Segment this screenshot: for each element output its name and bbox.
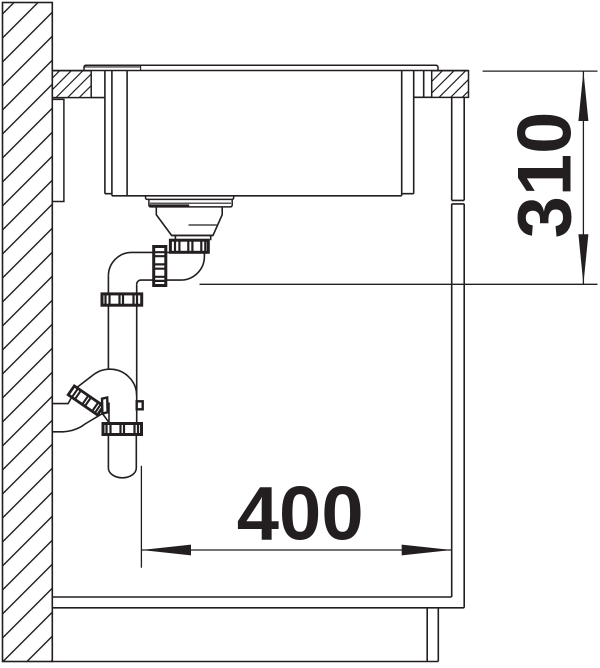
svg-text:400: 400 <box>237 472 364 557</box>
svg-text:310: 310 <box>503 112 588 239</box>
